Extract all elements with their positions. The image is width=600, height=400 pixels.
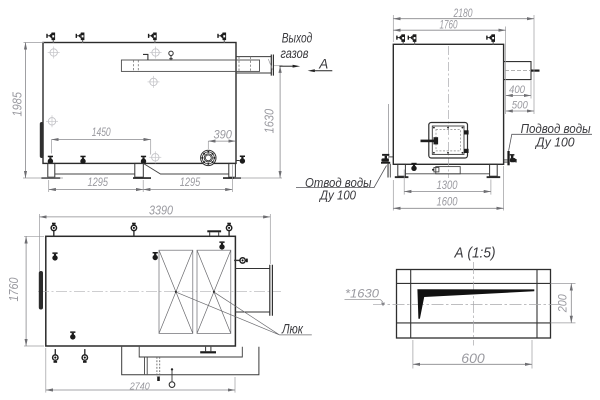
svg-text:1630: 1630 <box>263 109 277 134</box>
svg-text:Люк: Люк <box>281 321 304 337</box>
svg-text:*1630: *1630 <box>345 286 379 300</box>
svg-text:1450: 1450 <box>92 125 111 139</box>
svg-text:390: 390 <box>213 127 232 141</box>
svg-text:200: 200 <box>556 294 570 313</box>
svg-text:1760: 1760 <box>7 277 21 301</box>
svg-text:Ду 100: Ду 100 <box>318 188 356 203</box>
svg-text:Ду 100: Ду 100 <box>534 134 575 149</box>
svg-text:газов: газов <box>281 46 309 61</box>
svg-text:1600: 1600 <box>437 197 458 209</box>
svg-text:400: 400 <box>509 84 526 96</box>
svg-text:500: 500 <box>512 99 529 111</box>
svg-text:1985: 1985 <box>11 92 25 117</box>
svg-text:А (1:5): А (1:5) <box>454 245 496 262</box>
svg-text:Выход: Выход <box>282 31 313 46</box>
svg-text:А: А <box>318 57 328 72</box>
svg-text:3390: 3390 <box>149 203 174 218</box>
svg-text:1295: 1295 <box>180 177 201 189</box>
svg-text:2740: 2740 <box>129 380 150 392</box>
svg-text:1760: 1760 <box>440 18 458 32</box>
svg-text:600: 600 <box>461 350 485 366</box>
svg-text:1300: 1300 <box>437 180 458 192</box>
svg-text:1295: 1295 <box>88 177 109 189</box>
